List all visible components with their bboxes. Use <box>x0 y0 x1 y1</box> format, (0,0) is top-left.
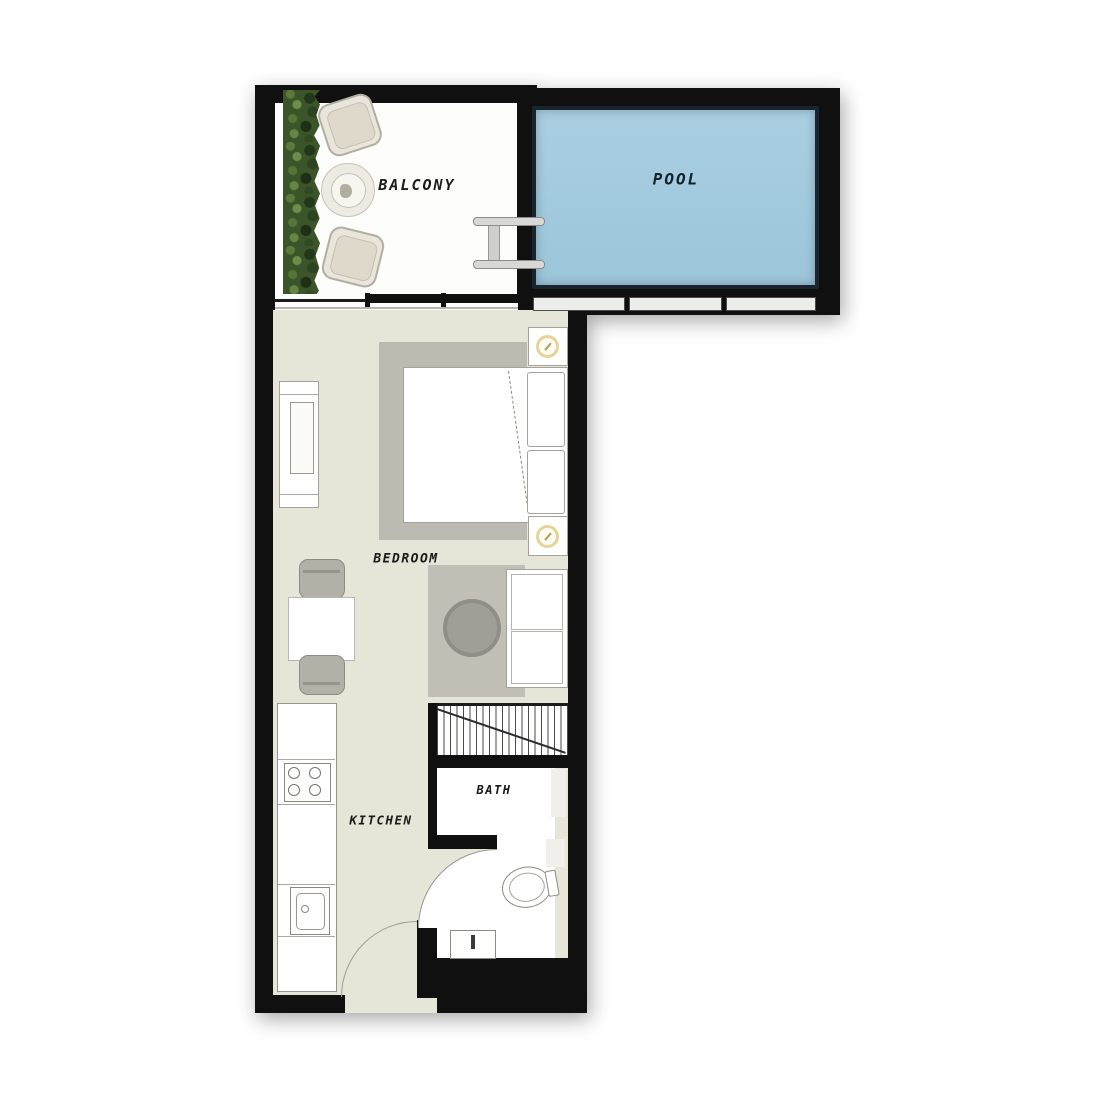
stove <box>284 763 331 802</box>
lamp-icon <box>536 335 559 358</box>
door-swing <box>418 849 497 928</box>
counter-divider <box>278 936 335 937</box>
armchair-seat <box>325 100 377 151</box>
closet-left-wall <box>428 703 437 757</box>
wall-niche <box>551 769 566 817</box>
console-shelf-line <box>280 394 318 395</box>
side-table-decor <box>340 184 352 198</box>
hedge-plants <box>283 90 320 297</box>
window-sill <box>275 307 518 309</box>
tv-icon <box>290 402 314 474</box>
faucet-dot-icon <box>301 905 309 913</box>
pool-ladder-rail-bottom <box>473 260 545 269</box>
burner-icon <box>288 767 300 779</box>
toilet <box>498 859 563 915</box>
dining-chair-bottom <box>299 655 345 695</box>
nightstand-bottom <box>528 516 568 556</box>
closet-bottom-wall <box>428 755 587 768</box>
counter-divider <box>278 804 335 805</box>
floor-plan: BALCONY POOL BEDROOM KITCHEN BATH <box>0 0 1100 1100</box>
sink-basin <box>296 893 325 930</box>
burner-icon <box>309 767 321 779</box>
media-console <box>279 381 319 508</box>
pillow-top <box>527 372 565 447</box>
balcony-side-table <box>321 163 375 217</box>
duvet-fold-line <box>508 371 529 514</box>
counter-divider <box>278 759 335 760</box>
pool-railing-panel <box>533 297 625 311</box>
kitchen-sink <box>290 887 330 935</box>
sofa-cushion <box>511 574 563 630</box>
floor-plan-canvas: BALCONY POOL BEDROOM KITCHEN BATH <box>0 0 1100 1100</box>
bath-left-wall <box>428 768 437 852</box>
closet-hatch <box>437 703 568 757</box>
pool-ladder-rail-top <box>473 217 545 226</box>
window-post-left <box>365 293 370 308</box>
door-swing <box>341 921 417 997</box>
dining-chair-top <box>299 559 345 599</box>
burner-icon <box>288 784 300 796</box>
pouf <box>443 599 501 657</box>
kitchen-counter <box>277 703 337 992</box>
label-balcony: BALCONY <box>378 176 455 194</box>
label-kitchen: KITCHEN <box>349 813 412 828</box>
lamp-icon <box>536 525 559 548</box>
counter-divider <box>278 884 335 885</box>
faucet-icon <box>471 935 475 949</box>
entry-door-arc <box>341 921 417 997</box>
burner-icon <box>309 784 321 796</box>
label-bedroom: BEDROOM <box>373 552 438 567</box>
nightstand-top <box>528 327 568 366</box>
sofa <box>506 569 568 688</box>
pool-railing-panel <box>726 297 816 311</box>
closet-diagonal-line <box>436 708 565 754</box>
bath-sink <box>450 930 496 959</box>
entry-wall-stub <box>417 920 437 998</box>
chair-back-line <box>303 682 340 685</box>
closet-top-line <box>437 703 568 706</box>
pool-ladder-step <box>488 224 500 262</box>
window-post-mid <box>441 293 446 308</box>
pool-railing-panel <box>629 297 722 311</box>
chair-back-line <box>303 570 340 573</box>
bath-door-arc <box>418 849 497 928</box>
label-bath: BATH <box>477 783 512 797</box>
console-shelf-line <box>280 494 318 495</box>
label-pool: POOL <box>653 170 700 189</box>
pool-water <box>532 106 819 289</box>
armchair-seat <box>329 234 379 283</box>
pillow-bottom <box>527 450 565 514</box>
sofa-cushion <box>511 631 563 684</box>
dining-table <box>288 597 355 661</box>
